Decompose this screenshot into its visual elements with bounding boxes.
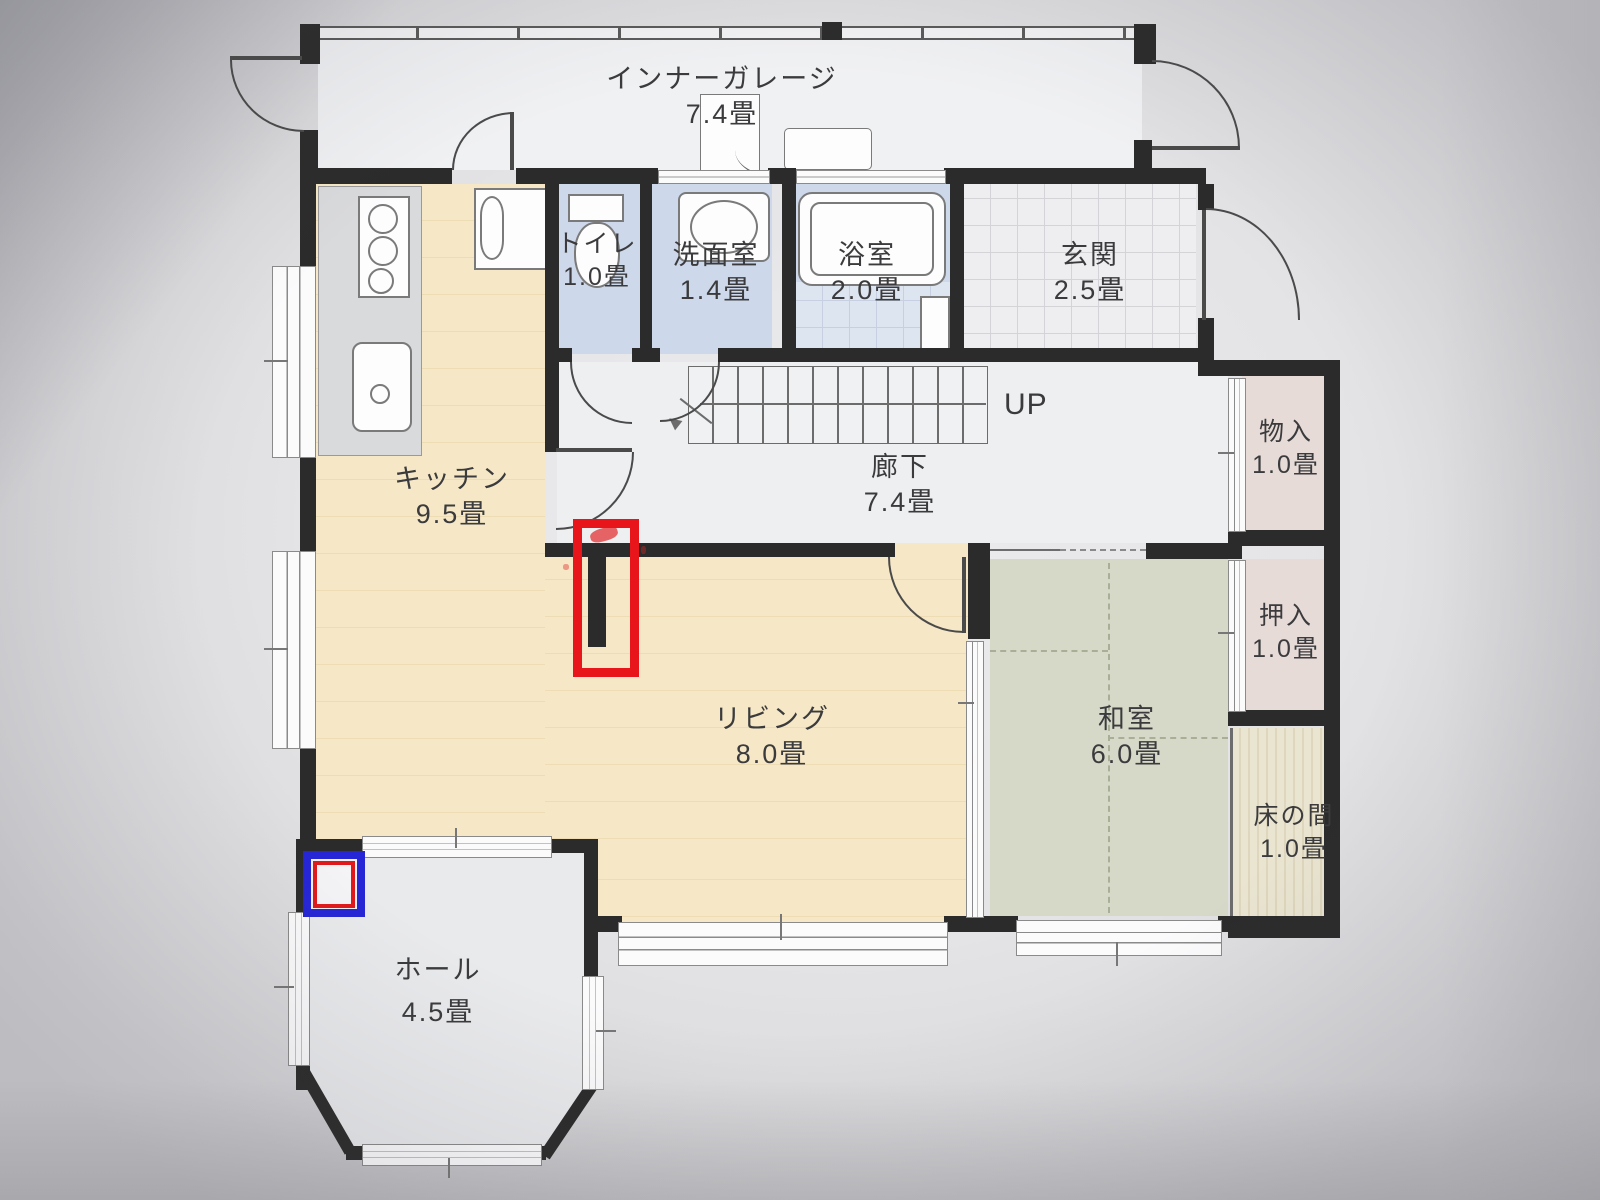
window-tick bbox=[596, 1030, 616, 1032]
garage-equipment-tank bbox=[784, 128, 872, 170]
red-marker-speck bbox=[641, 546, 646, 554]
refrigerator-door bbox=[480, 196, 504, 260]
room-label-bathroom: 浴室2.0畳 bbox=[831, 238, 904, 308]
hall-window-right bbox=[582, 976, 604, 1090]
room-label-storage: 物入1.0畳 bbox=[1252, 416, 1320, 481]
tokonoma-left-line bbox=[1230, 728, 1233, 916]
wall bbox=[968, 543, 990, 639]
annotation-red-inner-box bbox=[313, 861, 355, 908]
room-label-closet: 押入1.0畳 bbox=[1252, 600, 1320, 665]
room-label-japanese-room: 和室6.0畳 bbox=[1091, 702, 1164, 772]
stove-burner bbox=[368, 204, 398, 234]
wall bbox=[768, 168, 796, 184]
wall bbox=[1198, 184, 1214, 210]
door-tick bbox=[1218, 452, 1234, 454]
room-label-entrance: 玄関2.5畳 bbox=[1054, 238, 1127, 308]
wall bbox=[944, 168, 1206, 184]
wall bbox=[300, 168, 452, 184]
japanese-room-opening bbox=[1060, 549, 1146, 551]
room-label-living: リビング8.0畳 bbox=[714, 702, 830, 772]
wall bbox=[545, 362, 559, 452]
wall bbox=[1134, 24, 1156, 64]
wall bbox=[300, 745, 316, 847]
wall bbox=[1228, 916, 1340, 938]
window-tick bbox=[448, 1158, 450, 1178]
japanese-room-sliding-door bbox=[966, 641, 984, 918]
floor-plan-photo: インナーガレージ7.4畳 トイレ1.0畳 洗面室1.4畳 浴室2.0畳 玄関2.… bbox=[0, 0, 1600, 1200]
bath-cabinet bbox=[920, 296, 950, 350]
storage-sliding-door bbox=[1228, 378, 1246, 532]
tatami-line bbox=[990, 650, 1108, 652]
stove-burner bbox=[368, 268, 394, 294]
window-tick bbox=[1116, 942, 1118, 966]
living-window-left bbox=[272, 551, 316, 749]
hall-window-bottom bbox=[362, 1144, 542, 1166]
window-tick bbox=[264, 648, 288, 650]
room-label-toilet: トイレ1.0畳 bbox=[556, 228, 637, 293]
japanese-room-top-line bbox=[990, 549, 1060, 551]
garage-shutter bbox=[318, 26, 1142, 40]
hall-window-left bbox=[288, 912, 310, 1066]
room-label-garage: インナーガレージ7.4畳 bbox=[606, 62, 837, 132]
living-window-bottom bbox=[618, 922, 948, 966]
door-tick bbox=[1218, 632, 1234, 634]
window-tick bbox=[264, 360, 288, 362]
wall bbox=[584, 839, 598, 979]
wall bbox=[944, 916, 1018, 932]
wall bbox=[1228, 710, 1328, 726]
stove-burner bbox=[368, 236, 398, 266]
bathroom-window bbox=[796, 170, 946, 184]
window-tick bbox=[780, 914, 782, 940]
window-tick bbox=[455, 828, 457, 848]
stairs-direction-line bbox=[700, 403, 986, 405]
room-label-hall: ホール4.5畳 bbox=[395, 950, 482, 1034]
wall bbox=[1228, 530, 1328, 546]
wall bbox=[640, 184, 652, 362]
washroom-window bbox=[658, 170, 770, 184]
room-label-washroom: 洗面室1.4畳 bbox=[673, 238, 760, 308]
wall bbox=[964, 348, 1206, 362]
wall bbox=[632, 348, 660, 362]
wall bbox=[516, 168, 658, 184]
wall bbox=[300, 24, 320, 64]
room-label-corridor: 廊下7.4畳 bbox=[864, 450, 937, 520]
wall bbox=[822, 22, 842, 40]
staircase bbox=[688, 366, 988, 444]
closet-sliding-door bbox=[1228, 560, 1246, 712]
room-label-kitchen: キッチン9.5畳 bbox=[394, 462, 510, 532]
red-marker-speck bbox=[563, 564, 569, 570]
wall bbox=[950, 184, 964, 362]
wall bbox=[300, 455, 316, 555]
wall bbox=[718, 348, 964, 362]
japanese-room-window-bottom bbox=[1016, 920, 1222, 956]
kitchen-window bbox=[272, 266, 316, 458]
wall bbox=[1198, 360, 1340, 376]
door-tick bbox=[958, 702, 974, 704]
room-label-tokonoma: 床の間1.0畳 bbox=[1253, 800, 1334, 865]
toilet-tank bbox=[568, 194, 624, 222]
hall-window-top bbox=[362, 836, 552, 858]
stairs-up-label: UP bbox=[1004, 388, 1048, 422]
wall bbox=[545, 348, 572, 362]
sink-drain bbox=[370, 384, 390, 404]
annotation-red-box bbox=[573, 519, 639, 677]
wall bbox=[300, 168, 316, 270]
wall bbox=[782, 184, 796, 362]
window-tick bbox=[274, 986, 294, 988]
